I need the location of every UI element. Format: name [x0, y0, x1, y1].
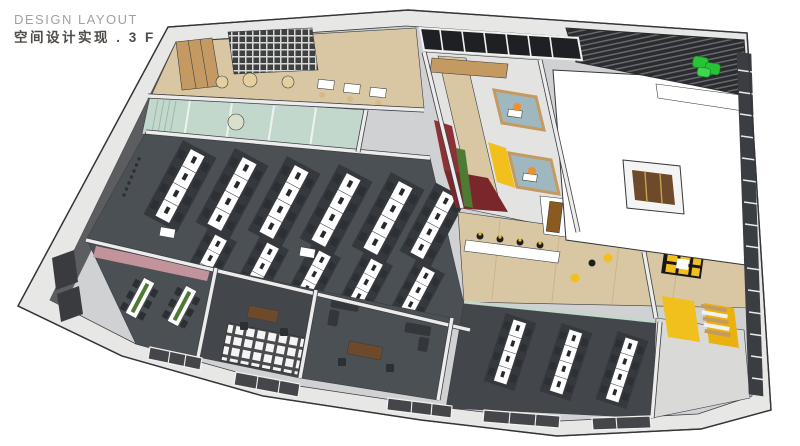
open-office-south: [446, 302, 660, 418]
pendant-lamp: [571, 274, 580, 283]
round-table: [282, 76, 294, 88]
pendant-lamp-dark: [589, 260, 596, 267]
round-table: [216, 76, 228, 88]
wood-shelving: [176, 38, 220, 90]
person-figure: [513, 103, 521, 111]
booth-1: [494, 90, 544, 130]
meeting-round-table: [228, 114, 244, 130]
round-table: [243, 73, 257, 87]
pendant-lamp: [604, 254, 613, 263]
floorplan-rendering: [0, 0, 800, 446]
pergola-slats: [228, 28, 318, 74]
skylight-box: [623, 160, 684, 214]
design-layout-page: DESIGN LAYOUT 空间设计实现 . 3 F: [0, 0, 800, 446]
person-figure: [528, 167, 536, 175]
